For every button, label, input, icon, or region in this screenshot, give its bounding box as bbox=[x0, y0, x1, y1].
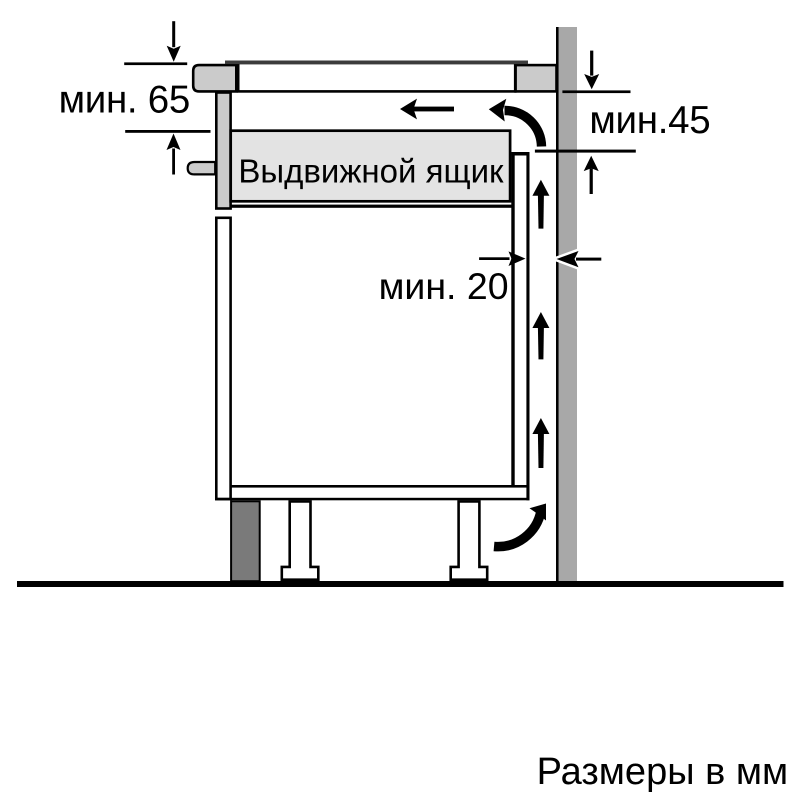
svg-text:мин. 20: мин. 20 bbox=[379, 265, 509, 307]
svg-text:Выдвижной ящик: Выдвижной ящик bbox=[238, 153, 504, 190]
svg-text:Размеры в мм: Размеры в мм bbox=[537, 751, 788, 793]
svg-text:мин.45: мин.45 bbox=[589, 99, 710, 142]
svg-text:мин. 65: мин. 65 bbox=[59, 79, 190, 122]
